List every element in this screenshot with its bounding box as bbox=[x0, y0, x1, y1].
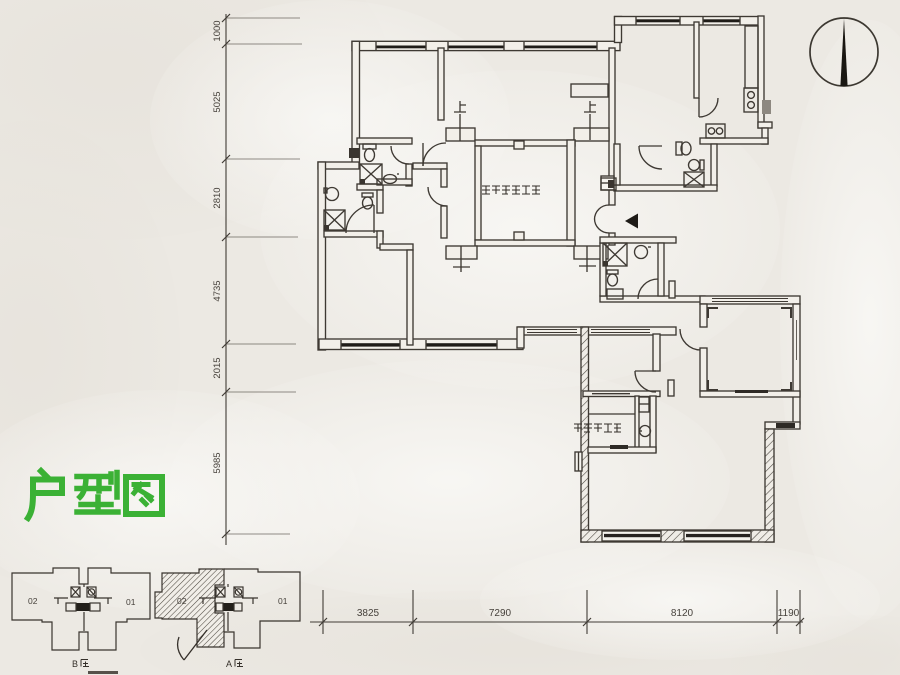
svg-text:A: A bbox=[226, 659, 232, 669]
svg-text:02: 02 bbox=[28, 596, 38, 606]
svg-text:1190: 1190 bbox=[778, 608, 800, 619]
svg-text:01: 01 bbox=[126, 597, 136, 607]
svg-text:7290: 7290 bbox=[489, 608, 512, 619]
svg-text:5025: 5025 bbox=[212, 91, 223, 112]
svg-text:01: 01 bbox=[278, 596, 288, 606]
svg-text:3825: 3825 bbox=[357, 608, 380, 619]
svg-text:2015: 2015 bbox=[212, 357, 223, 378]
svg-text:1000: 1000 bbox=[212, 20, 223, 41]
svg-text:2810: 2810 bbox=[212, 187, 223, 208]
svg-text:8120: 8120 bbox=[671, 608, 694, 619]
svg-text:02: 02 bbox=[177, 596, 187, 606]
svg-text:B: B bbox=[72, 659, 78, 669]
svg-text:4735: 4735 bbox=[212, 280, 223, 301]
svg-text:5985: 5985 bbox=[212, 452, 223, 473]
